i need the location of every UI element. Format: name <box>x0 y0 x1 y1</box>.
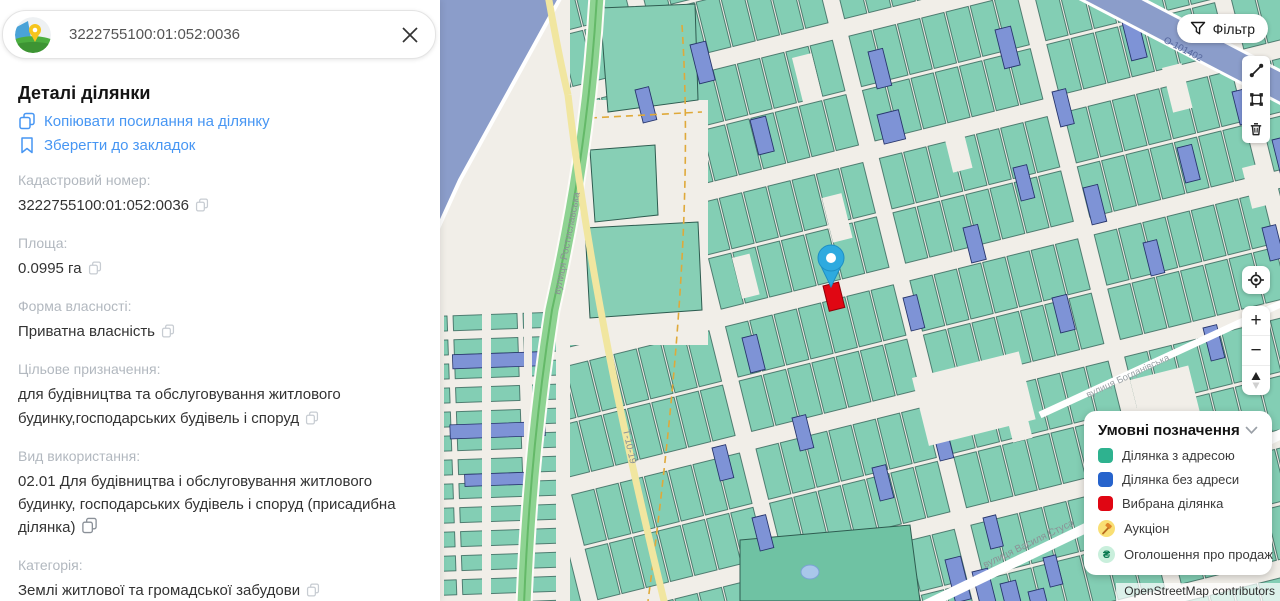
locate-button[interactable] <box>1242 266 1270 294</box>
search-input[interactable] <box>69 26 399 43</box>
map[interactable]: вулиця Ростиславська Т-10-19 вулиця Васи… <box>440 0 1280 601</box>
cadastral-map-app: Деталі ділянки Копіювати посилання на ді… <box>0 0 1280 601</box>
hryvnia-icon: ₴ <box>1098 546 1115 563</box>
chevron-down-icon <box>1245 426 1258 435</box>
locate-icon <box>1247 271 1265 289</box>
map-attribution: OpenStreetMap contributors <box>1116 583 1280 601</box>
compass-icon <box>1249 371 1263 391</box>
legend-header[interactable]: Умовні позначення <box>1098 422 1258 439</box>
map-tools <box>1242 56 1270 143</box>
legend-panel: Умовні позначення Ділянка з адресою Діля… <box>1084 411 1272 575</box>
copy-link-label: Копіювати посилання на ділянку <box>44 113 270 130</box>
copy-icon <box>18 112 36 130</box>
bookmark-icon <box>18 136 36 154</box>
measure-icon <box>1248 62 1265 79</box>
area-select-icon <box>1248 91 1265 108</box>
copy-value-icon[interactable] <box>195 198 209 212</box>
legend-item-auction: Аукціон <box>1098 520 1258 537</box>
field-purpose: Цільове призначення: для будівництва та … <box>18 360 410 429</box>
bookmark-label: Зберегти до закладок <box>44 137 195 154</box>
legend-item-selected: Вибрана ділянка <box>1098 496 1258 511</box>
filter-icon <box>1190 21 1206 36</box>
field-category: Категорія: Землі житлової та громадської… <box>18 556 410 601</box>
zoom-out-button[interactable]: − <box>1242 336 1270 365</box>
green-swatch <box>1098 448 1113 463</box>
pond <box>801 565 819 579</box>
close-icon[interactable] <box>399 24 421 46</box>
field-area: Площа: 0.0995 га <box>18 234 410 280</box>
area-select-button[interactable] <box>1242 85 1270 114</box>
copy-value-icon[interactable] <box>306 583 320 597</box>
field-cadastral-number: Кадастровий номер: 3222755100:01:052:003… <box>18 171 410 217</box>
page-title: Деталі ділянки <box>18 83 410 104</box>
zoom-in-button[interactable]: + <box>1242 306 1270 335</box>
zoom-controls: + − <box>1242 306 1270 395</box>
field-ownership: Форма власності: Приватна власність <box>18 297 410 343</box>
bookmark-button[interactable]: Зберегти до закладок <box>18 136 410 154</box>
auction-gavel-icon <box>1098 520 1115 537</box>
copy-link-button[interactable]: Копіювати посилання на ділянку <box>18 112 410 130</box>
delete-button[interactable] <box>1242 114 1270 143</box>
search-box[interactable] <box>2 10 436 59</box>
legend-item-sale: ₴ Оголошення про продаж <box>1098 546 1258 563</box>
compass-button[interactable] <box>1242 366 1270 395</box>
details-sidebar: Деталі ділянки Копіювати посилання на ді… <box>0 0 440 601</box>
trash-icon <box>1248 121 1264 137</box>
copy-value-icon[interactable] <box>161 324 175 338</box>
measure-button[interactable] <box>1242 56 1270 85</box>
red-swatch <box>1098 496 1113 511</box>
app-logo-icon <box>15 17 51 53</box>
copy-value-icon[interactable] <box>88 261 102 275</box>
filter-button[interactable]: Фільтр <box>1177 14 1268 43</box>
blue-swatch <box>1098 472 1113 487</box>
legend-title: Умовні позначення <box>1098 422 1240 439</box>
legend-item-no-address: Ділянка без адреси <box>1098 472 1258 487</box>
legend-item-with-address: Ділянка з адресою <box>1098 448 1258 463</box>
copy-value-icon[interactable] <box>81 517 98 534</box>
filter-label: Фільтр <box>1213 21 1255 37</box>
field-use-type: Вид використання: 02.01 Для будівництва … <box>18 447 410 540</box>
copy-value-icon[interactable] <box>305 411 319 425</box>
